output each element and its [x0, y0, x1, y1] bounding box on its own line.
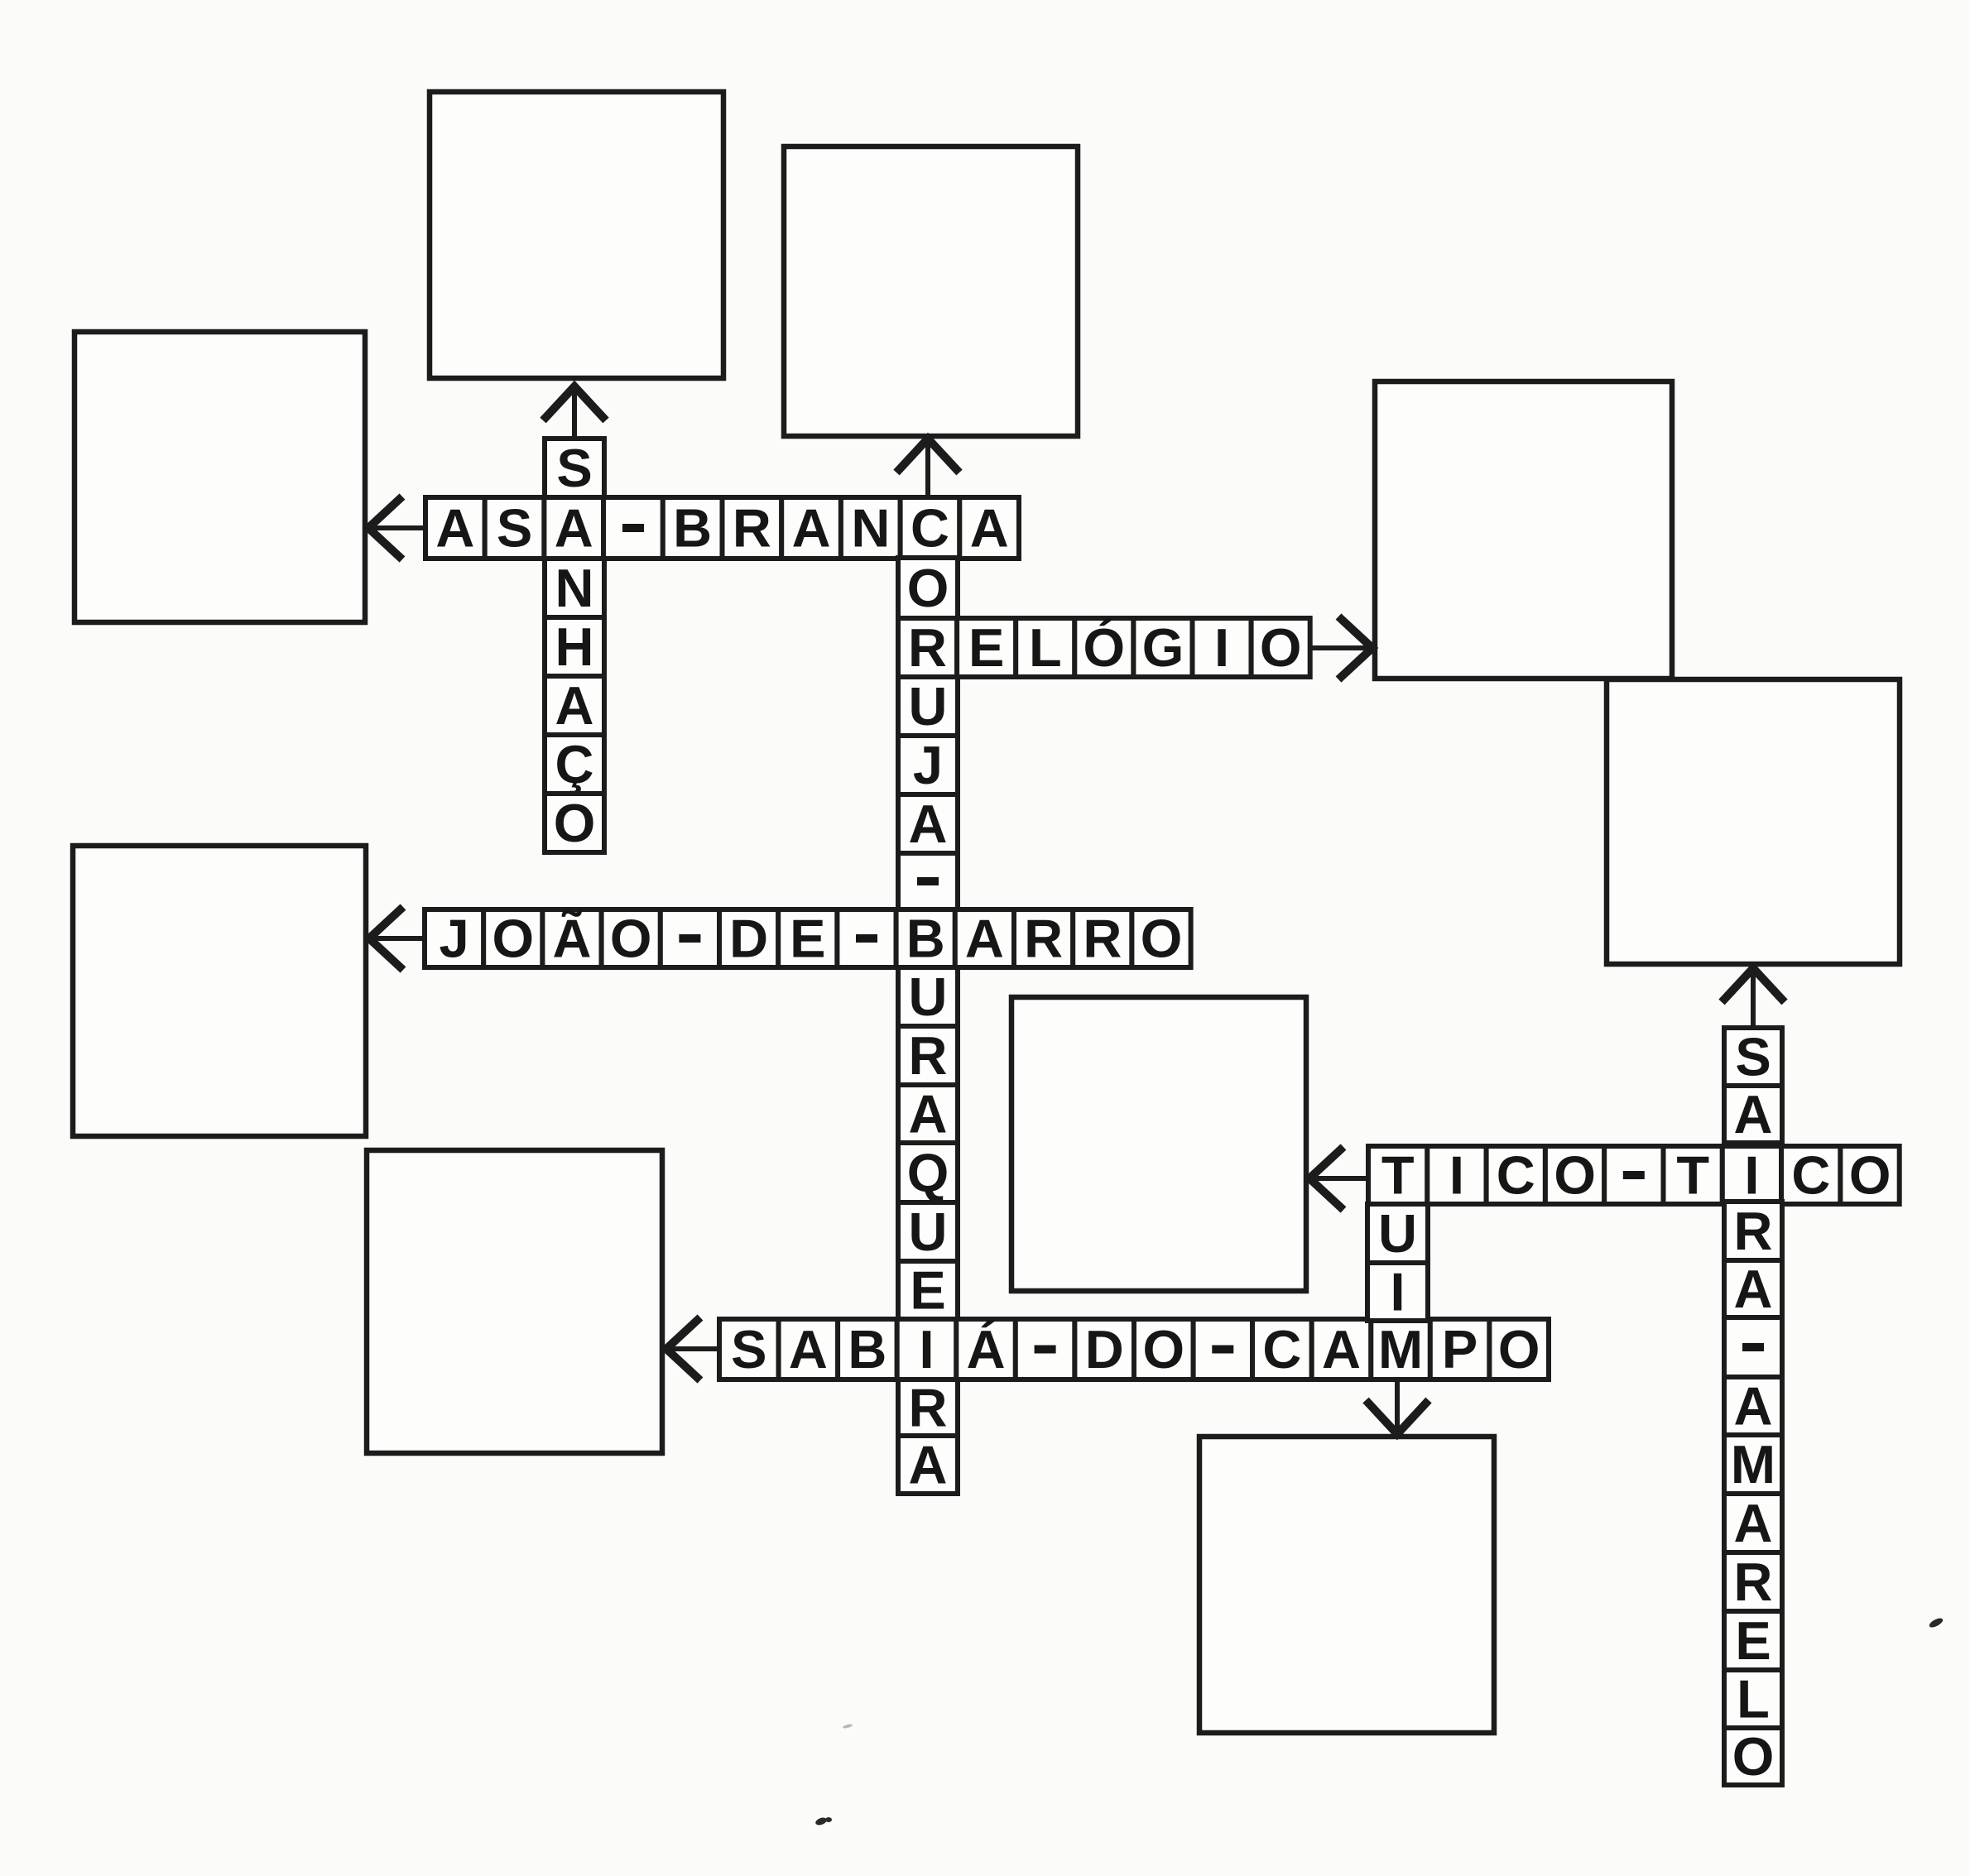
svg-text:B: B: [906, 909, 945, 969]
svg-text:A: A: [555, 498, 593, 559]
svg-text:J: J: [913, 735, 943, 795]
svg-text:R: R: [1024, 909, 1063, 969]
svg-text:O: O: [1260, 617, 1302, 678]
svg-text:T: T: [1381, 1145, 1415, 1206]
svg-text:U: U: [909, 676, 948, 736]
svg-text:L: L: [1029, 617, 1062, 678]
svg-text:E: E: [790, 909, 825, 969]
svg-text:G: G: [1142, 617, 1184, 678]
svg-text:C: C: [911, 498, 949, 559]
svg-text:M: M: [1731, 1434, 1775, 1495]
svg-text:B: B: [848, 1319, 886, 1379]
svg-text:R: R: [908, 617, 947, 678]
svg-text:O: O: [1554, 1145, 1596, 1206]
svg-text:A: A: [1322, 1319, 1361, 1379]
svg-text:E: E: [968, 617, 1004, 678]
svg-text:O: O: [1143, 1319, 1185, 1379]
svg-text:R: R: [733, 498, 771, 559]
svg-text:H: H: [555, 617, 594, 677]
svg-text:I: I: [919, 1319, 934, 1379]
svg-text:D: D: [729, 909, 768, 969]
svg-text:O: O: [492, 909, 535, 969]
svg-text:A: A: [1734, 1376, 1773, 1437]
svg-text:R: R: [1083, 909, 1122, 969]
svg-text:A: A: [792, 498, 831, 559]
svg-text:O: O: [1141, 909, 1183, 969]
svg-text:L: L: [1737, 1669, 1770, 1730]
svg-text:Ç: Ç: [555, 734, 594, 794]
svg-text:S: S: [497, 498, 532, 559]
svg-text:Ã: Ã: [553, 909, 592, 969]
svg-text:R: R: [909, 1025, 948, 1086]
svg-text:Ó: Ó: [1083, 617, 1126, 678]
svg-text:A: A: [435, 498, 474, 559]
svg-text:O: O: [1849, 1145, 1891, 1206]
svg-text:J: J: [440, 909, 469, 969]
svg-text:S: S: [556, 438, 592, 498]
svg-text:C: C: [1262, 1319, 1301, 1379]
svg-text:N: N: [555, 558, 594, 618]
svg-text:O: O: [1498, 1319, 1540, 1379]
svg-text:A: A: [909, 1084, 948, 1144]
svg-text:O: O: [554, 793, 596, 853]
svg-text:E: E: [1735, 1610, 1771, 1671]
svg-text:I: I: [1744, 1145, 1759, 1206]
svg-text:I: I: [1390, 1262, 1405, 1322]
svg-text:A: A: [1734, 1259, 1773, 1319]
svg-text:S: S: [1735, 1027, 1771, 1087]
svg-text:Á: Á: [967, 1319, 1006, 1379]
svg-text:A: A: [1734, 1084, 1773, 1144]
svg-text:N: N: [851, 498, 890, 559]
svg-text:U: U: [909, 967, 948, 1027]
svg-text:Q: Q: [907, 1143, 949, 1203]
svg-text:A: A: [789, 1319, 828, 1379]
svg-text:M: M: [1378, 1319, 1423, 1379]
svg-text:P: P: [1442, 1319, 1477, 1379]
svg-text:C: C: [1791, 1145, 1830, 1206]
svg-text:R: R: [1734, 1552, 1773, 1612]
svg-text:A: A: [965, 909, 1004, 969]
svg-text:S: S: [731, 1319, 766, 1379]
svg-text:O: O: [907, 558, 949, 618]
svg-text:E: E: [910, 1260, 945, 1321]
svg-text:O: O: [1732, 1726, 1775, 1787]
svg-text:A: A: [970, 498, 1009, 559]
svg-text:I: I: [1214, 617, 1229, 678]
svg-text:A: A: [909, 1435, 948, 1495]
svg-text:R: R: [909, 1378, 948, 1438]
svg-text:A: A: [555, 675, 594, 736]
svg-text:A: A: [1734, 1493, 1773, 1553]
svg-text:B: B: [673, 498, 712, 559]
svg-text:D: D: [1085, 1319, 1124, 1379]
svg-text:R: R: [1734, 1201, 1773, 1261]
svg-text:U: U: [909, 1202, 948, 1262]
svg-text:C: C: [1497, 1145, 1535, 1206]
svg-text:O: O: [610, 909, 652, 969]
svg-text:T: T: [1676, 1145, 1709, 1206]
svg-text:A: A: [909, 794, 948, 854]
svg-text:I: I: [1449, 1145, 1464, 1206]
svg-text:U: U: [1378, 1203, 1417, 1264]
